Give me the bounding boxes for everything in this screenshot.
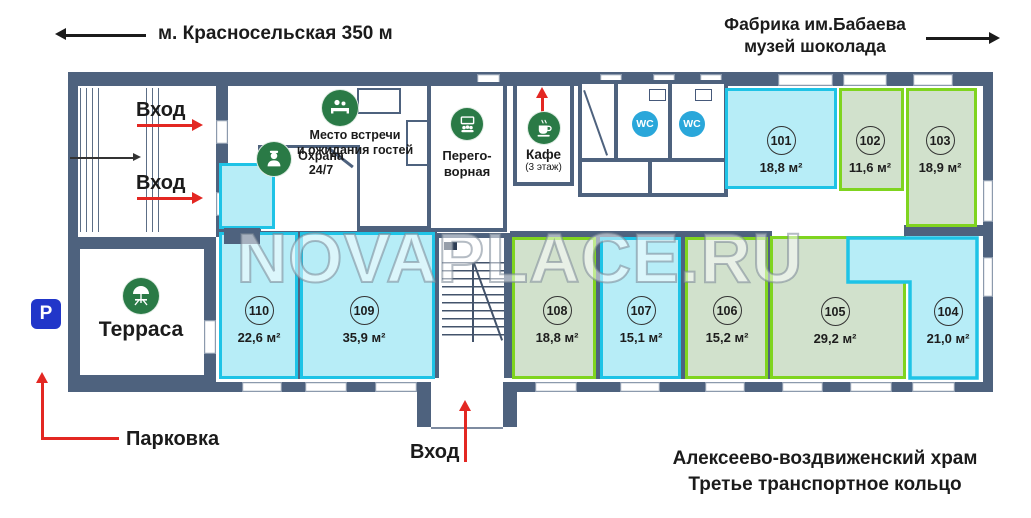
window: [242, 382, 282, 392]
room-number: 104: [934, 297, 963, 326]
window: [983, 257, 993, 297]
factory-arrow-right-icon: [989, 32, 1000, 44]
floor-plan-page: м. Красносельская 350 м Фабрика им.Бабае…: [0, 0, 1031, 518]
window: [983, 180, 993, 222]
factory-line1: Фабрика им.Бабаева: [724, 14, 906, 34]
guard-icon: [263, 148, 285, 170]
parking-arrow-base: [41, 437, 119, 440]
cafe-label: Кафе: [515, 147, 572, 162]
toilet: [649, 89, 666, 101]
metro-arrow-left-icon: [55, 28, 66, 40]
room-area: 11,6 м²: [849, 160, 891, 175]
entrance-arrow-1-head-icon: [192, 119, 203, 131]
cafe-arrow-up-icon: [536, 87, 548, 98]
room-number: 110: [245, 296, 274, 325]
people-sofa-icon: [328, 96, 352, 120]
room-102-label: 102 11,6 м²: [830, 126, 910, 175]
room-number: 101: [767, 126, 796, 155]
entrance-label-2: Вход: [136, 172, 185, 195]
room-108-label: 108 18,8 м²: [517, 296, 597, 345]
room-103-label: 103 18,9 м²: [900, 126, 980, 175]
room-area: 18,8 м²: [536, 330, 579, 345]
room-109-label: 109 35,9 м²: [324, 296, 404, 345]
metro-label: м. Красносельская 350 м: [158, 23, 393, 45]
cafe-floor-label: (3 этаж): [511, 162, 576, 173]
room-101-label: 101 18,8 м²: [741, 126, 821, 175]
room-area: 18,9 м²: [919, 160, 962, 175]
security-label-2: 24/7: [288, 163, 354, 177]
entrance-arrow-bottom-up-icon: [459, 400, 471, 411]
room-area: 15,2 м²: [706, 330, 749, 345]
meeting-room-label-1: Перего-: [429, 148, 505, 163]
room-area: 15,1 м²: [620, 330, 663, 345]
room-area: 22,6 м²: [238, 330, 281, 345]
room-105-label: 105 29,2 м²: [795, 297, 875, 346]
meeting-room-label-2: ворная: [429, 164, 505, 179]
parking-label: Парковка: [126, 428, 219, 451]
window: [620, 382, 660, 392]
entrance-arrow-1: [137, 124, 193, 127]
room-area: 21,0 м²: [927, 331, 970, 346]
metro-arrow-line: [66, 34, 146, 37]
terrace-icon: [122, 277, 160, 315]
room-number: 106: [713, 296, 742, 325]
watermark: NOVAPLACE.RU: [160, 218, 880, 298]
entrance-arrow-2: [137, 197, 193, 200]
vestibule-wall: [503, 382, 517, 427]
room-110-label: 110 22,6 м²: [219, 296, 299, 345]
parking-sign: P: [31, 299, 61, 329]
wall: [582, 158, 724, 162]
room-area: 29,2 м²: [814, 331, 857, 346]
room-number: 108: [543, 296, 572, 325]
window: [843, 74, 887, 86]
room-number: 109: [350, 296, 379, 325]
window: [305, 382, 347, 392]
window: [375, 382, 417, 392]
entrance-arrow-2-head-icon: [192, 192, 203, 204]
factory-arrow-line: [926, 37, 990, 40]
terrace-label: Терраса: [75, 318, 207, 342]
room-107-label: 107 15,1 м²: [601, 296, 681, 345]
meeting-room-icon: [450, 107, 484, 141]
security-label-1: Охрана: [288, 149, 354, 163]
meeting-line1: Место встречи: [310, 128, 401, 142]
window: [216, 120, 228, 144]
room-number: 105: [821, 297, 850, 326]
window: [912, 382, 955, 392]
parking-arrow-shaft: [41, 382, 44, 439]
landmark-line2: Третье транспортное кольцо: [688, 474, 961, 495]
wall: [614, 84, 618, 158]
stair-hatch: [80, 88, 104, 232]
meeting-point-icon: [321, 89, 359, 127]
parking-arrow-up-icon: [36, 372, 48, 383]
room-106-label: 106 15,2 м²: [687, 296, 767, 345]
vestibule-wall: [417, 382, 431, 427]
entrance-label-1: Вход: [136, 99, 185, 122]
coffee-cup-icon: [534, 118, 555, 139]
sofa: [357, 88, 401, 114]
cafe-icon: [527, 111, 561, 145]
parasol-table-icon: [129, 284, 153, 308]
toilet: [695, 89, 712, 101]
window: [913, 74, 953, 86]
window: [850, 382, 892, 392]
window: [782, 382, 823, 392]
room-area: 18,8 м²: [760, 160, 803, 175]
landmark-label: Алексеево-воздвиженский храм Третье тран…: [650, 446, 1000, 498]
lobby-arrow-line: [70, 157, 134, 159]
lobby-arrow-right-icon: [133, 153, 141, 161]
entrance-arrow-bottom: [464, 410, 467, 462]
room-number: 102: [856, 126, 885, 155]
window: [535, 382, 577, 392]
factory-line2: музей шоколада: [744, 36, 886, 56]
wc-badge-1: WC: [632, 111, 658, 137]
room-number: 107: [627, 296, 656, 325]
wall: [648, 162, 652, 194]
entrance-label-bottom: Вход: [410, 441, 459, 464]
wall: [668, 84, 672, 158]
window: [705, 382, 745, 392]
room-104-label: 104 21,0 м²: [908, 297, 988, 346]
presentation-people-icon: [457, 114, 478, 135]
room-number: 103: [926, 126, 955, 155]
window: [778, 74, 833, 86]
security-icon: [256, 141, 292, 177]
landmark-line1: Алексеево-воздвиженский храм: [673, 448, 978, 469]
factory-label: Фабрика им.Бабаева музей шоколада: [715, 13, 915, 57]
wc-badge-2: WC: [679, 111, 705, 137]
room-area: 35,9 м²: [343, 330, 386, 345]
